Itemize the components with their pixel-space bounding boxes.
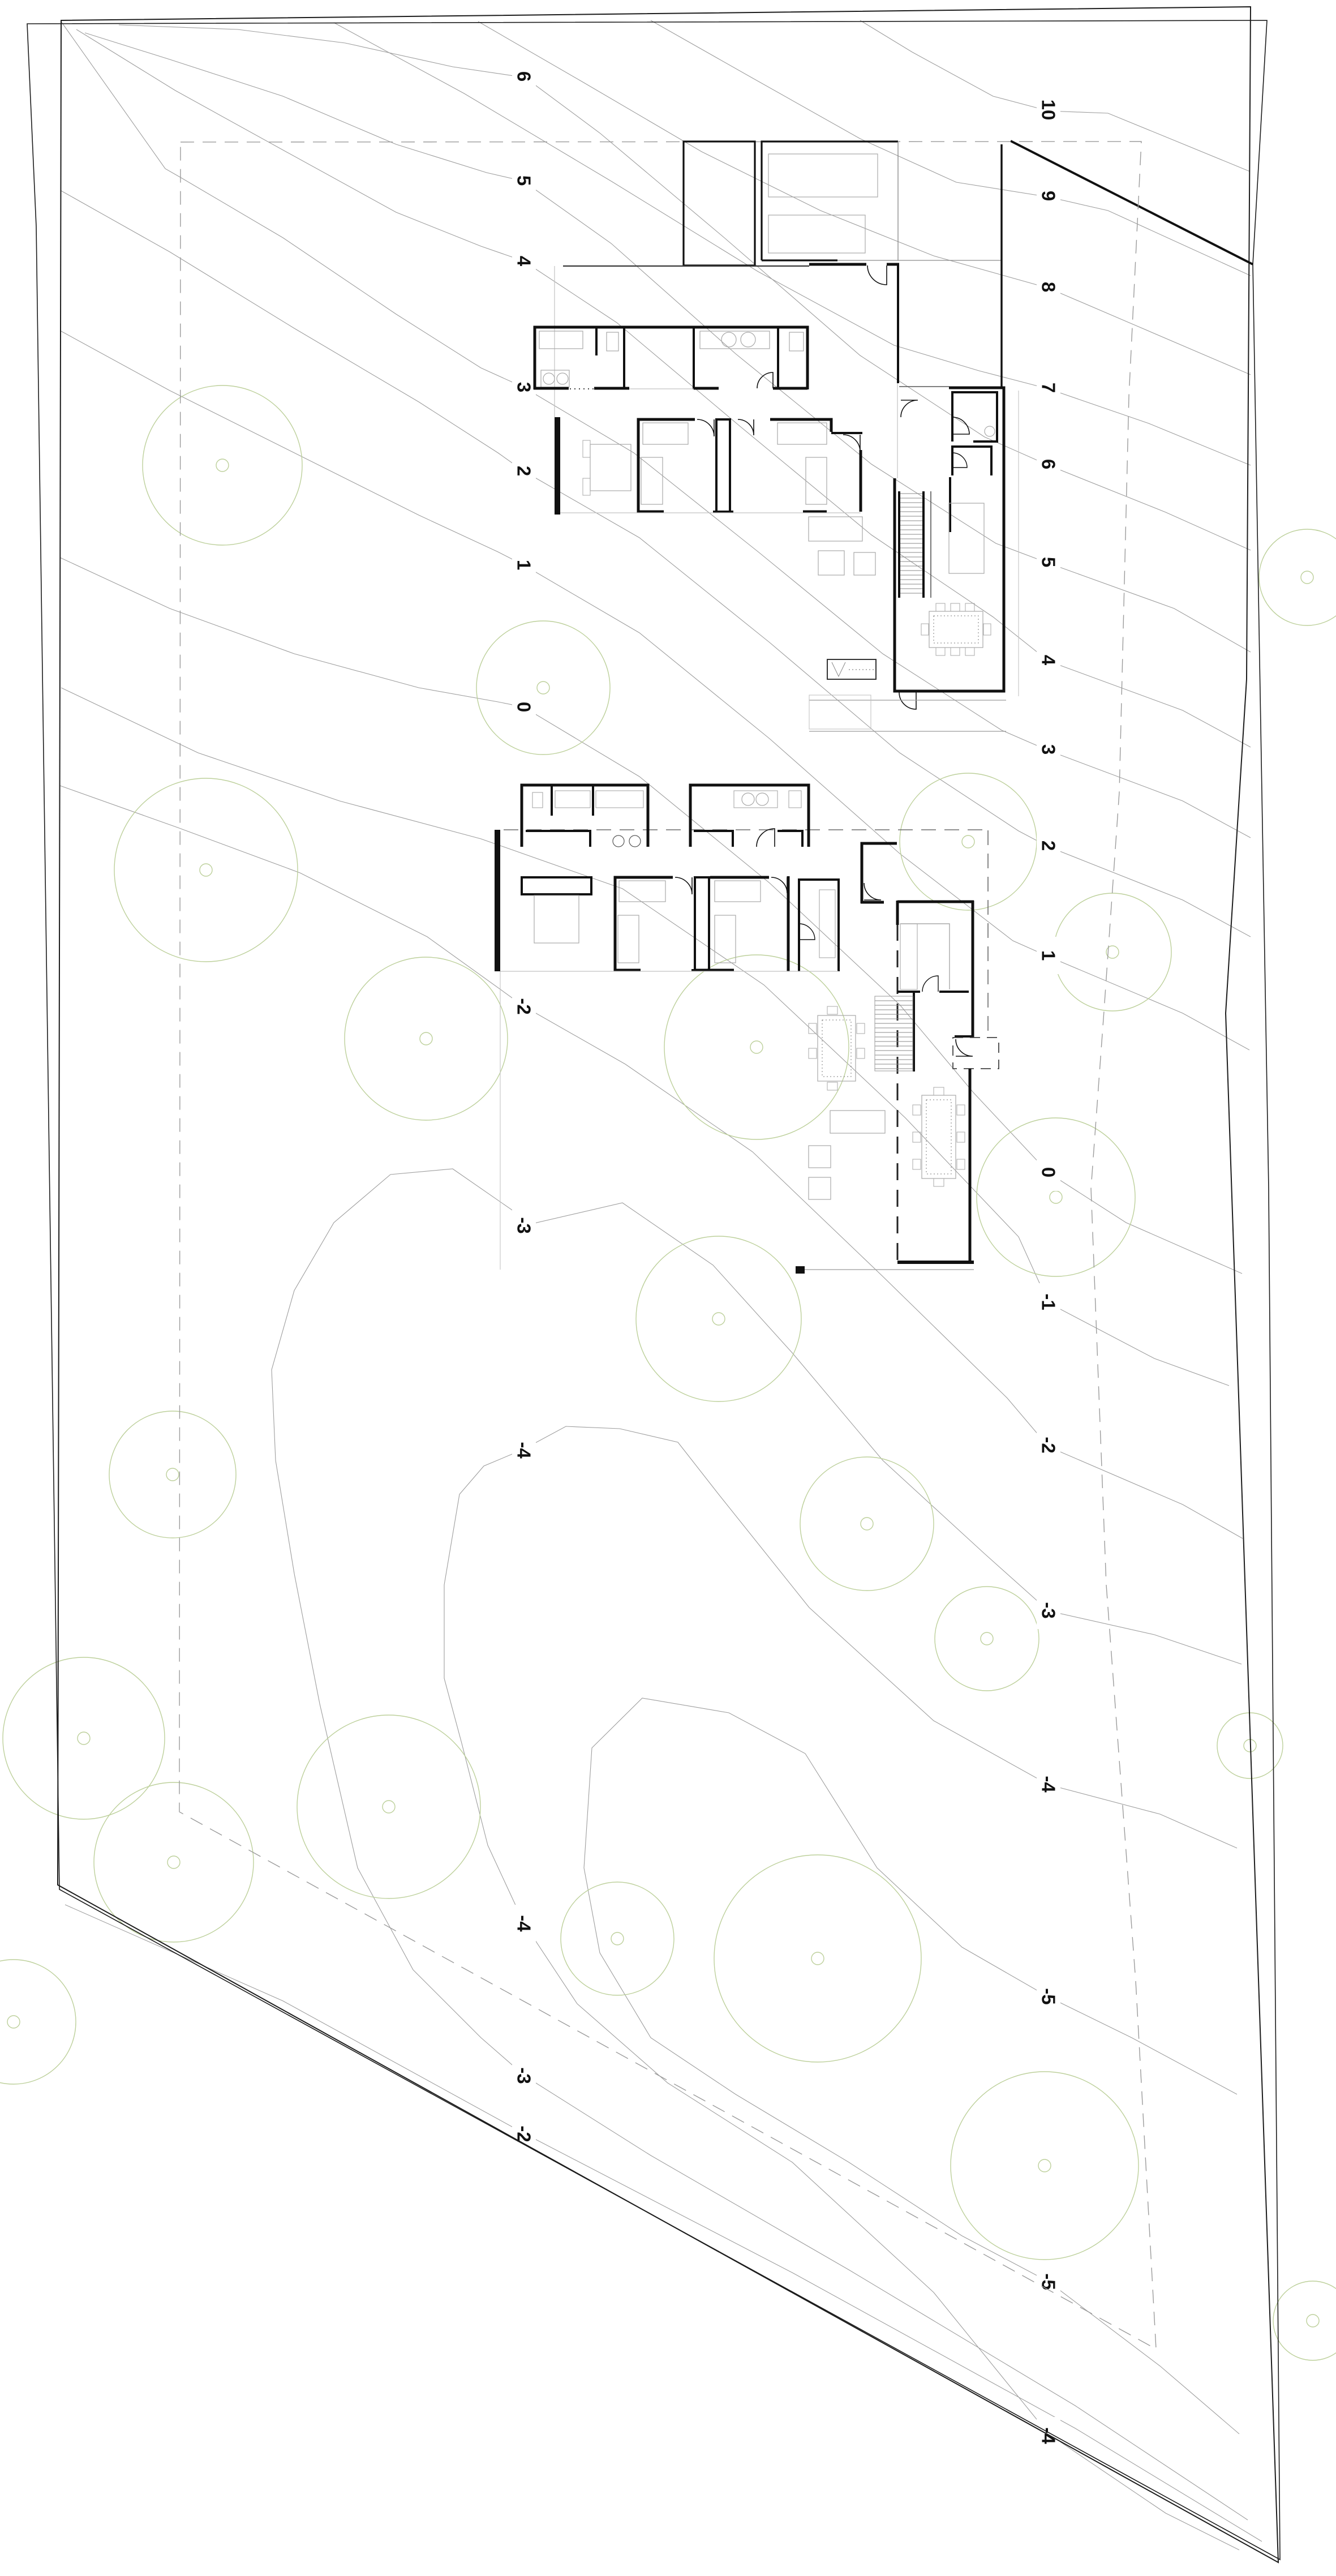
svg-text:7: 7 — [1038, 383, 1059, 393]
svg-text:0: 0 — [514, 702, 535, 712]
svg-text:5: 5 — [1038, 557, 1059, 567]
svg-text:5: 5 — [514, 175, 535, 186]
svg-text:-5: -5 — [1038, 1988, 1059, 2004]
svg-text:-2: -2 — [1038, 1437, 1059, 1453]
svg-text:10: 10 — [1038, 100, 1059, 121]
svg-text:2: 2 — [514, 466, 535, 476]
svg-text:-2: -2 — [514, 998, 535, 1014]
svg-text:4: 4 — [514, 256, 535, 267]
svg-text:1: 1 — [1038, 950, 1059, 961]
svg-text:3: 3 — [514, 382, 535, 392]
svg-text:-5: -5 — [1038, 2273, 1059, 2290]
svg-text:-1: -1 — [1038, 1293, 1059, 1310]
svg-text:8: 8 — [1038, 282, 1059, 292]
svg-text:-3: -3 — [514, 1217, 535, 1233]
svg-text:-4: -4 — [1038, 2427, 1059, 2444]
svg-text:-4: -4 — [1038, 1776, 1059, 1793]
svg-text:6: 6 — [1038, 459, 1059, 469]
svg-text:9: 9 — [1038, 191, 1059, 201]
svg-text:-3: -3 — [1038, 1602, 1059, 1618]
svg-text:6: 6 — [514, 71, 535, 82]
svg-text:1: 1 — [514, 560, 535, 570]
svg-text:0: 0 — [1038, 1167, 1059, 1177]
svg-text:4: 4 — [1038, 655, 1059, 666]
svg-text:3: 3 — [1038, 744, 1059, 755]
svg-text:-4: -4 — [514, 1915, 535, 1932]
svg-text:-4: -4 — [514, 1442, 535, 1459]
svg-text:2: 2 — [1038, 841, 1059, 851]
svg-text:-3: -3 — [514, 2067, 535, 2084]
